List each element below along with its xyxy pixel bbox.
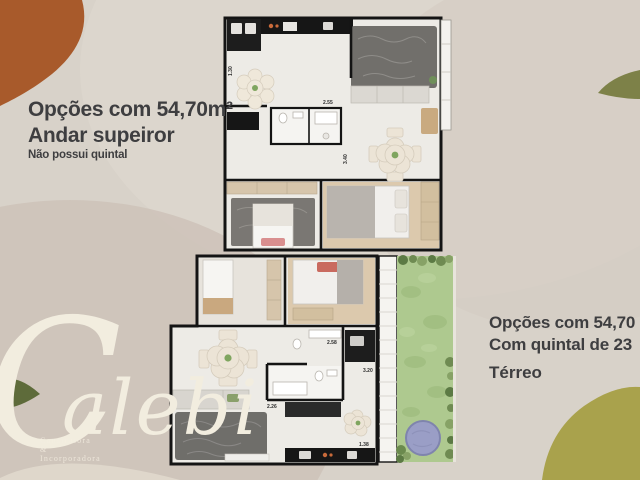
upper-floor-info: Opções com 54,70m² Andar supeiror Não po… (28, 97, 233, 161)
garden-right-wall (453, 256, 456, 462)
flyer-canvas: Opções com 54,70m² Andar supeiror Não po… (0, 0, 640, 480)
ground-bedroom-right (288, 258, 375, 324)
upper-floor-note-text: Não possui quintal (28, 149, 233, 161)
ground-measure-label: 2.58 (327, 340, 337, 346)
upper-floor-area-text: Opções com 54,70m² (28, 97, 233, 123)
ground-measure-label: 1.38 (359, 442, 369, 448)
ground-laundry (345, 330, 375, 362)
upper-utility (227, 19, 261, 51)
upper-bathroom (271, 108, 341, 144)
ground-floor-quintal-text: Com quintal de 23 (489, 334, 635, 356)
upper-measure-label: 3.40 (343, 154, 349, 164)
floor-plan-upper: 1.30 2.55 3.40 (223, 14, 453, 254)
ground-floor-name-text: Térreo (489, 363, 635, 383)
garden-pool (406, 421, 440, 455)
upper-balcony (441, 20, 451, 130)
upper-measure-label: 2.55 (323, 100, 333, 106)
ground-garden (396, 255, 456, 463)
ground-floor-info: Opções com 54,70 Com quintal de 23 Térre… (489, 312, 635, 383)
ground-measure-label: 2.26 (267, 404, 277, 410)
upper-bedroom-left (227, 182, 317, 248)
logo-wordmark: alebi (62, 370, 260, 446)
upper-floor-name-text: Andar supeiror (28, 123, 233, 149)
logo-tagline: Construtora & Incorporadora (40, 436, 101, 463)
ground-floor-area-text: Opções com 54,70 (489, 312, 635, 334)
upper-kitchen (261, 19, 353, 34)
ground-measure-label: 3.20 (363, 368, 373, 374)
upper-bedroom-right (323, 182, 439, 248)
upper-measure-label: 1.30 (228, 66, 234, 76)
ground-deck (379, 256, 397, 462)
ground-bedroom-left (199, 258, 283, 324)
